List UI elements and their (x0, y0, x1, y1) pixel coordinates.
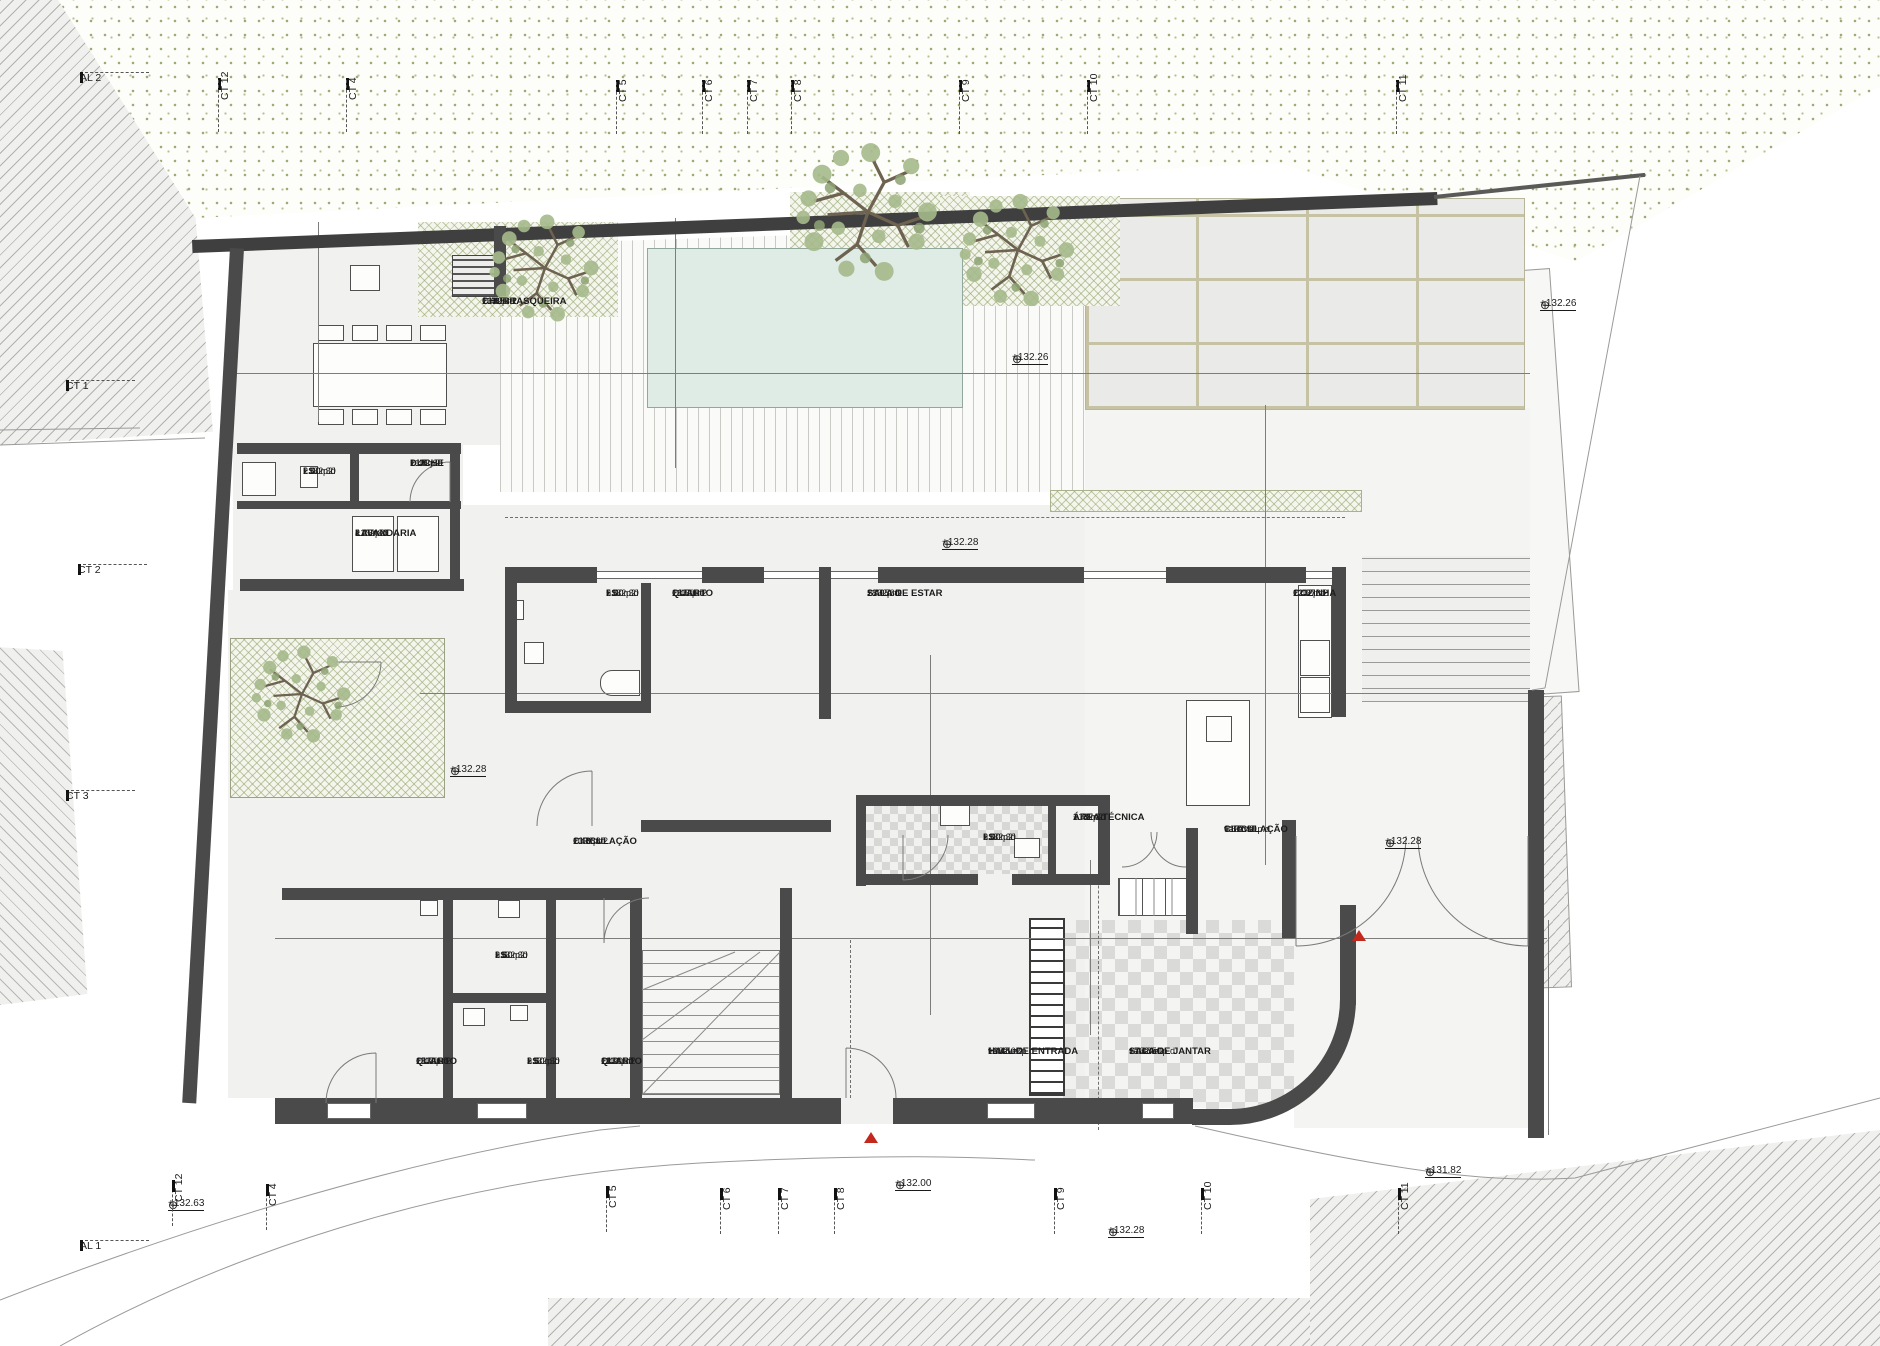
elevation-value: +132.28 (942, 537, 978, 550)
grid-axis-dash (71, 790, 135, 791)
grid-tick (1201, 1188, 1204, 1200)
grid-tick (720, 1188, 723, 1200)
grid-axis-dash (1087, 82, 1088, 134)
grid-tick (606, 1186, 609, 1198)
grid-axis-dash (71, 380, 135, 381)
room-elevation: +132.30 (1073, 812, 1106, 823)
grid-label: CT 9 (951, 88, 981, 102)
grid-label: CT 3 (66, 790, 89, 802)
room-elevation: +132.30 (355, 528, 388, 539)
room-elevation: +132.30 (527, 1056, 560, 1067)
grid-axis-dash (83, 564, 147, 565)
grid-tick (172, 1180, 175, 1192)
plan-linework (0, 0, 1880, 1346)
grid-tick (778, 1188, 781, 1200)
room-elevation: +132.50 (1129, 1046, 1162, 1057)
room-elevation: +132.30 (1224, 824, 1257, 835)
elevation-value: +132.28 (1108, 1225, 1144, 1238)
grid-label: CT 2 (78, 564, 101, 576)
grid-label: CT 6 (712, 1196, 742, 1210)
grid-label: AL 1 (80, 1240, 101, 1252)
grid-label: CT 11 (1390, 1196, 1420, 1210)
room-elevation: +132.30 (303, 466, 336, 477)
secondary-entrance-triangle (1352, 930, 1366, 941)
grid-label: CT 1 (66, 380, 89, 392)
grid-tick (1398, 1188, 1401, 1200)
grid-label: CT 5 (598, 1194, 628, 1208)
elevation-value: +132.00 (895, 1178, 931, 1191)
grid-label: CT 5 (608, 88, 638, 102)
elevation-value: +132.26 (1012, 352, 1048, 365)
grid-label: CT 11 (1388, 88, 1418, 102)
grid-axis-dash (747, 82, 748, 134)
room-elevation: +132.30 (983, 832, 1016, 843)
grid-axis-dash (85, 72, 149, 73)
grid-label: CT 8 (826, 1196, 856, 1210)
grid-axis-dash (702, 82, 703, 134)
grid-label: CT 12 (210, 86, 240, 100)
grid-label: CT 6 (694, 88, 724, 102)
floor-plan-stage: CHURRASQUEIRA 16.85m2 2.40 p.d +132.30 I… (0, 0, 1880, 1346)
grid-label: CT 10 (1079, 88, 1109, 102)
grid-label: CT 7 (739, 88, 769, 102)
grid-axis-dash (218, 80, 219, 132)
grid-axis-dash (346, 80, 347, 132)
grid-axis-dash (959, 82, 960, 134)
entrance-marker-triangle (864, 1132, 878, 1143)
grid-axis-dash (616, 82, 617, 134)
grid-label: CT 9 (1046, 1196, 1076, 1210)
grid-tick (1054, 1188, 1057, 1200)
room-elevation: +132.30 (1293, 588, 1326, 599)
grid-axis-dash (85, 1240, 149, 1241)
elevation-value: +131.82 (1425, 1165, 1461, 1178)
room-elevation: +132.30 (601, 1056, 634, 1067)
room-elevation: +132.30 (410, 458, 443, 469)
grid-label: CT 7 (770, 1196, 800, 1210)
elevation-value: +132.28 (1385, 836, 1421, 849)
grid-tick (266, 1184, 269, 1196)
grid-label: CT 8 (783, 88, 813, 102)
room-elevation: +132.02 (988, 1046, 1021, 1057)
grid-tick (834, 1188, 837, 1200)
grid-label: CT 12 (164, 1188, 194, 1202)
room-elevation: +132.30 (482, 296, 515, 307)
room-elevation: +132.30 (606, 588, 639, 599)
room-elevation: +132.30 (495, 950, 528, 961)
room-elevation: +132.30 (416, 1056, 449, 1067)
grid-label: CT 10 (1193, 1196, 1223, 1210)
room-elevation: +132.30 (867, 588, 900, 599)
grid-label: AL 2 (80, 72, 101, 84)
room-elevation: +132.30 (573, 836, 606, 847)
room-elevation: +132.30 (672, 588, 705, 599)
grid-axis-dash (791, 82, 792, 134)
grid-label: CT 4 (338, 86, 368, 100)
grid-label: CT 4 (258, 1192, 288, 1206)
elevation-value: +132.28 (450, 764, 486, 777)
elevation-value: +132.26 (1540, 298, 1576, 311)
grid-axis-dash (1396, 82, 1397, 134)
